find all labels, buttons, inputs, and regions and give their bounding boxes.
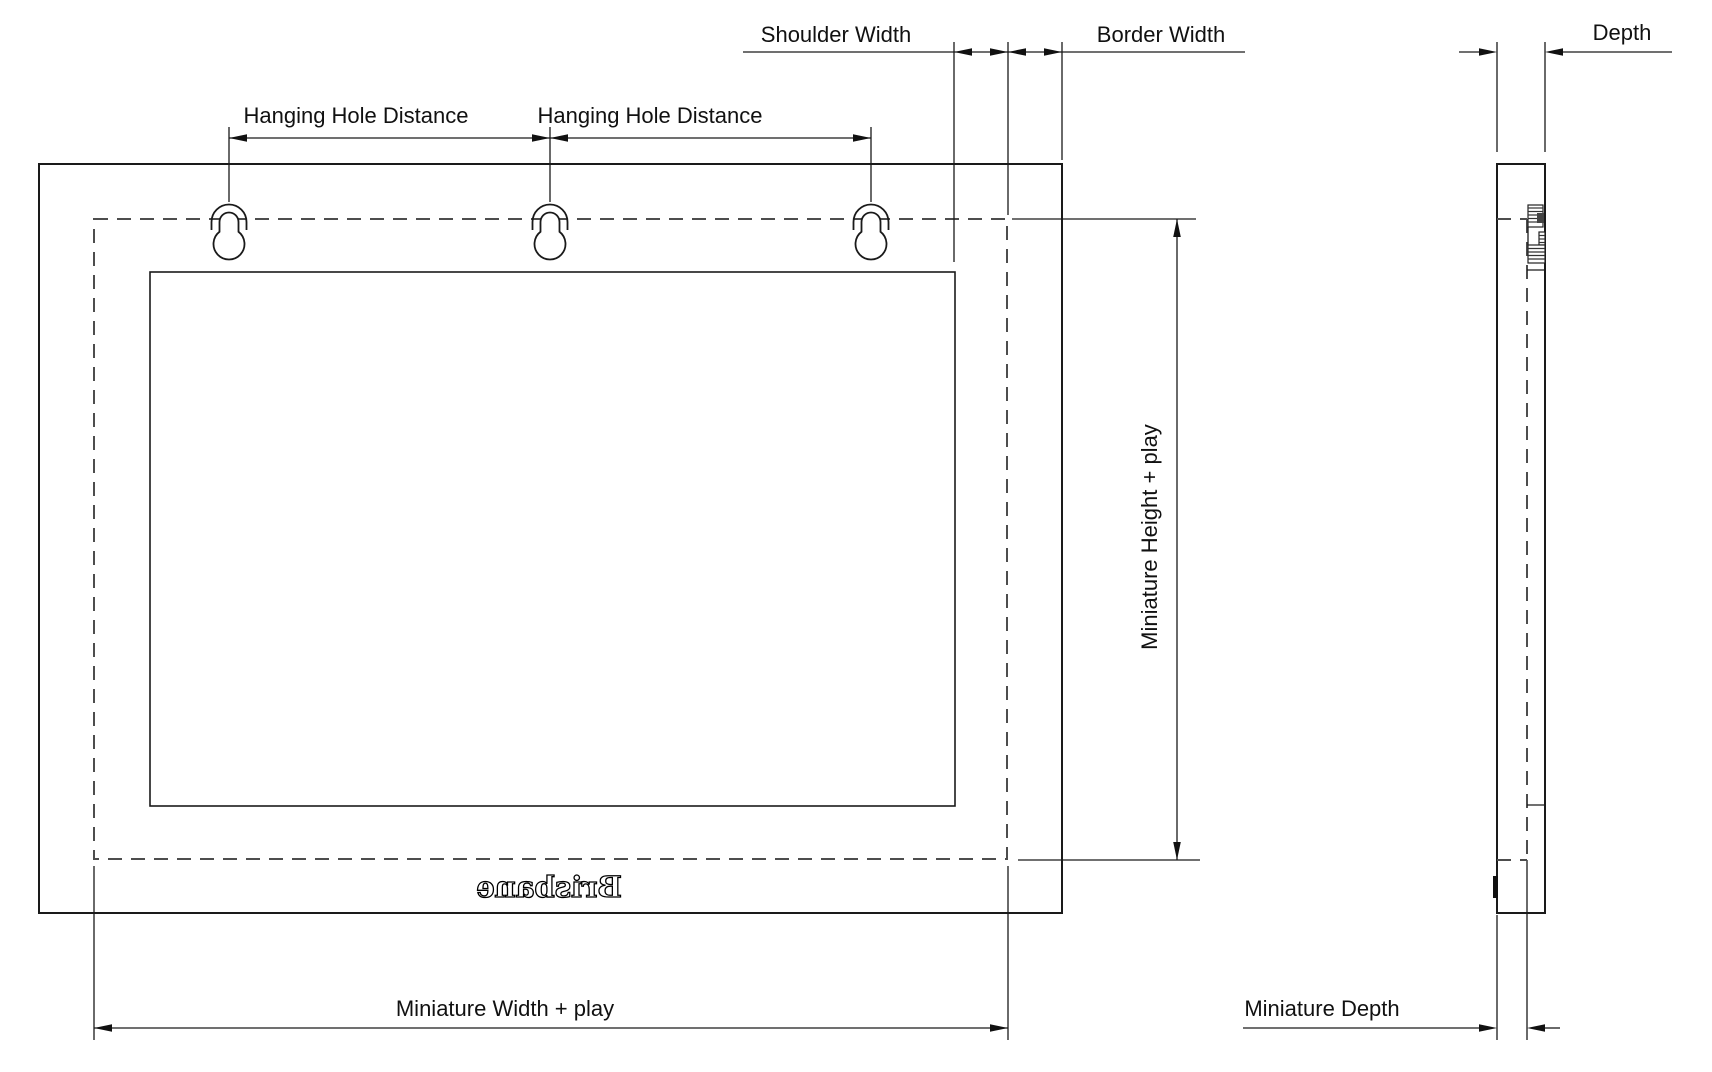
front-view: Hanging Hole Distance Hanging Hole Dista… (39, 22, 1245, 1040)
arrowhead (990, 1024, 1008, 1032)
arrowhead (1479, 1024, 1497, 1032)
border-width-label: Border Width (1097, 22, 1225, 47)
miniature-height-label: Miniature Height + play (1137, 424, 1162, 650)
hanging-hole-distance-left-label: Hanging Hole Distance (243, 103, 468, 128)
arrowhead (550, 134, 568, 142)
frame-opening-outline (150, 272, 955, 806)
arrowhead (1173, 219, 1181, 237)
engraving-brand-text: Brisbane (476, 870, 622, 904)
miniature-width-label: Miniature Width + play (396, 996, 614, 1021)
dimension-hanging-hole-distance-right: Hanging Hole Distance (537, 103, 871, 142)
hanging-hardware-detail (1528, 205, 1545, 263)
arrowhead (954, 48, 972, 56)
miniature-depth-label: Miniature Depth (1244, 996, 1399, 1021)
arrowhead (1008, 48, 1026, 56)
hanging-keyhole-left-icon (212, 205, 247, 260)
arrowhead (1527, 1024, 1545, 1032)
arrowhead (1545, 48, 1563, 56)
arrowhead (532, 134, 550, 142)
hanging-keyhole-center-icon (533, 205, 568, 260)
miniature-play-dashed-outline (94, 219, 1007, 859)
frame-technical-drawing: Hanging Hole Distance Hanging Hole Dista… (0, 0, 1712, 1072)
arrowhead (1173, 842, 1181, 860)
arrowhead (229, 134, 247, 142)
frame-outer-outline (39, 164, 1062, 913)
dimension-hanging-hole-distance-left: Hanging Hole Distance (229, 103, 550, 142)
arrowhead (1044, 48, 1062, 56)
arrowhead (990, 48, 1008, 56)
side-view: Depth Miniature Depth (1243, 20, 1672, 1040)
side-profile-outline (1497, 164, 1545, 913)
arrowhead (1479, 48, 1497, 56)
hanging-hole-distance-right-label: Hanging Hole Distance (537, 103, 762, 128)
dimension-shoulder-width: Shoulder Width (743, 22, 1008, 56)
dimension-miniature-height: Miniature Height + play (1012, 219, 1200, 860)
hanging-keyhole-right-icon (854, 205, 889, 260)
drawing-svg: Hanging Hole Distance Hanging Hole Dista… (0, 0, 1712, 1072)
engraving-side-profile (1493, 876, 1498, 898)
arrowhead (853, 134, 871, 142)
dimension-depth: Depth (1459, 20, 1672, 152)
dimension-miniature-depth: Miniature Depth (1243, 996, 1560, 1032)
shoulder-width-label: Shoulder Width (761, 22, 911, 47)
arrowhead (94, 1024, 112, 1032)
dimension-border-width: Border Width (1008, 22, 1245, 56)
depth-label: Depth (1593, 20, 1652, 45)
